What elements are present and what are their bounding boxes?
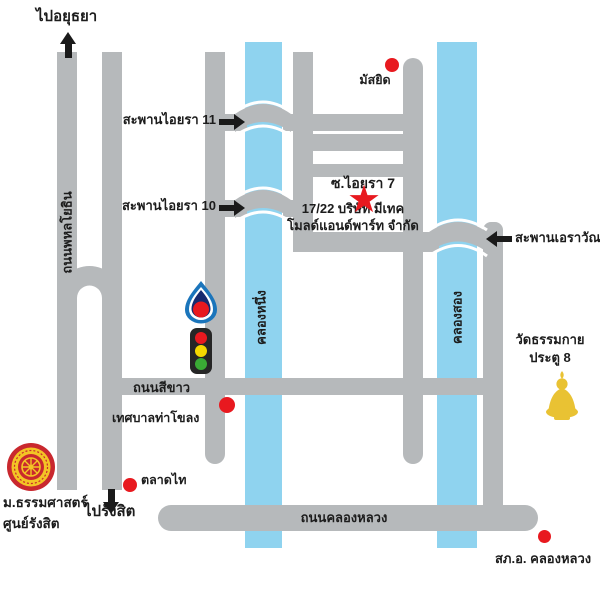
to-ayutthaya-arrow-icon [60,32,77,58]
mosque-label: มัสยิด [347,72,403,89]
university-seal-icon [6,442,56,492]
traffic-light-icon [190,328,212,374]
to-rangsit-arrow-icon [103,489,120,514]
bridge-erawan-5-arc [429,219,487,255]
company-location-star-icon: ★ [347,181,381,219]
bridge-aiyara-11-label: สะพานไอยรา 11 [118,111,216,128]
canal-one-label: คลองหนึ่ง [251,263,272,373]
market-label: ตลาดไท [141,472,186,489]
police-station-label: สภ.อ. คลองหลวง [495,550,591,567]
mosque-marker [385,58,399,72]
bridge-erawan-5-arrow-icon [486,231,512,247]
ptt-gas-station-icon [183,280,219,324]
municipality-marker [219,397,235,413]
sikhao-road-label: ถนนสีขาว [133,379,190,396]
road-v-wat-dhammakaya [483,222,503,530]
university-label-line2: ศูนย์รังสิต [3,515,60,532]
canal-two-label: คลองสอง [447,263,468,373]
road-rung-2 [310,134,423,151]
municipality-label: เทศบาลท่าโขลง [112,410,199,427]
road-rung-aiyara11-east [283,114,423,131]
phahonyothin-road-label: ถนนพหลโยธิน [57,173,78,293]
map-canvas: ★ ไปอยุธยา ถน [0,0,600,600]
road-rung-erawan [293,232,439,252]
wat-dhammakaya-label-line2: ประตู 8 [504,349,596,366]
bridge-aiyara-10-label: สะพานไอยรา 10 [118,197,216,214]
wat-dhammakaya-label-line1: วัดธรรมกาย [504,331,596,348]
buddha-icon [540,371,584,423]
market-marker [123,478,137,492]
bridge-erawan-5-label: สะพานเอราวัณ 5 [515,229,600,246]
to-ayutthaya-label: ไปอยุธยา [36,8,97,25]
university-label-line1: ม.ธรรมศาสตร์ [3,494,88,511]
bridge-aiyara-11-arrow-icon [219,114,245,130]
bridge-aiyara-10-arrow-icon [219,200,245,216]
police-marker [538,530,551,543]
khlong-luang-road-label: ถนนคลองหลวง [288,509,400,526]
